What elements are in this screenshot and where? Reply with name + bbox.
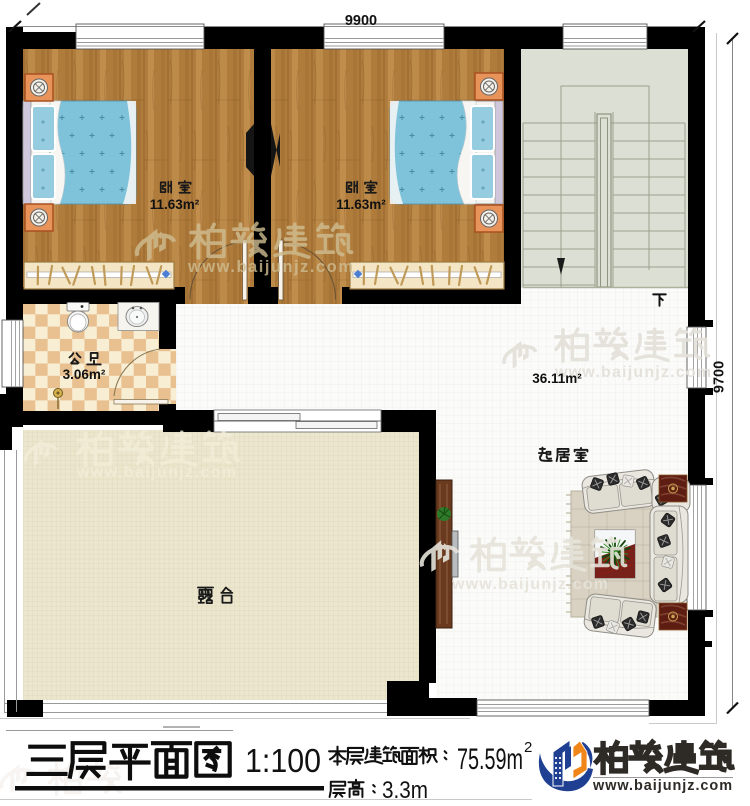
svg-text:36.11m²: 36.11m² (532, 371, 582, 386)
svg-text:75.59m: 75.59m (457, 743, 523, 776)
svg-text:2: 2 (524, 739, 532, 756)
svg-text:www.baijunjz.com: www.baijunjz.com (592, 777, 733, 794)
svg-text:9700: 9700 (712, 361, 728, 393)
svg-text:www.baijunjz.com: www.baijunjz.com (76, 464, 238, 481)
svg-text:1:100: 1:100 (245, 742, 321, 779)
svg-text:3.06m²: 3.06m² (63, 367, 106, 382)
svg-text:11.63m²: 11.63m² (150, 197, 200, 212)
svg-text:11.63m²: 11.63m² (336, 197, 386, 212)
svg-text:9900: 9900 (345, 13, 377, 29)
svg-text:www.baijunjz.com: www.baijunjz.com (187, 258, 354, 276)
svg-text:www.baijunjz.com: www.baijunjz.com (451, 576, 609, 593)
svg-text:3.3m: 3.3m (382, 777, 428, 804)
